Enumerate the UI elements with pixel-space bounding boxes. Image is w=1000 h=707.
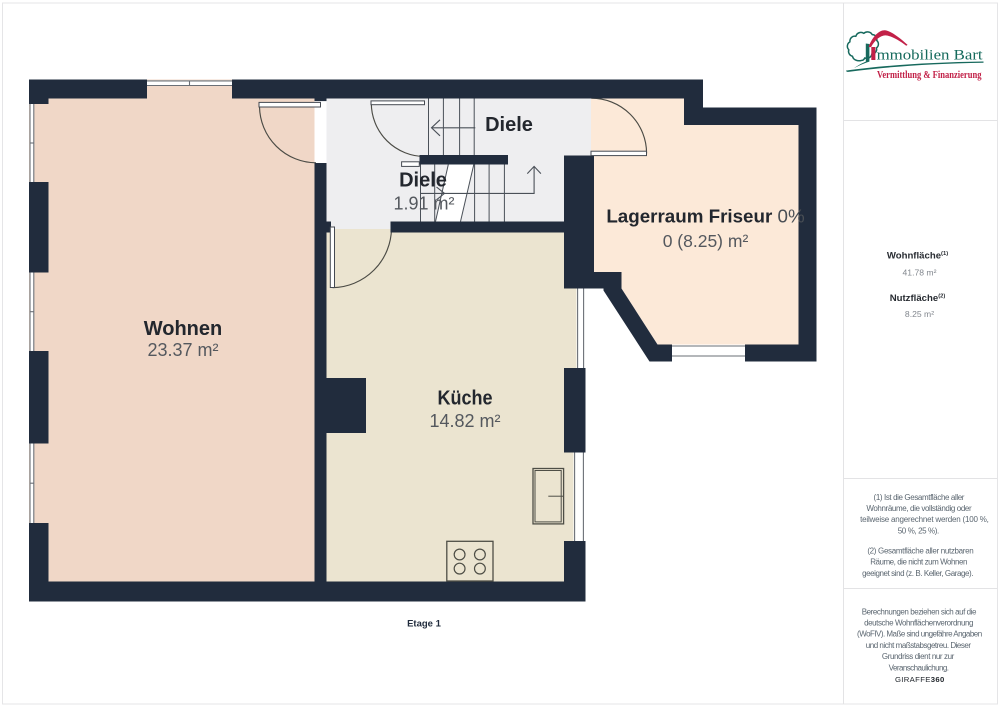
svg-text:(1) Ist die Gesamtfläche aller: (1) Ist die Gesamtfläche aller [874, 493, 965, 502]
svg-text:(2) Gesamtfläche aller nutzbar: (2) Gesamtfläche aller nutzbaren [867, 546, 973, 555]
svg-text:Veranschaulichung.: Veranschaulichung. [889, 663, 949, 672]
svg-text:50 %, 25 %).: 50 %, 25 %). [898, 526, 940, 535]
svg-text:mmobilien Bart: mmobilien Bart [877, 47, 983, 63]
svg-text:Diele: Diele [399, 170, 447, 192]
svg-text:Wohnen: Wohnen [144, 318, 223, 340]
svg-text:41.78 m²: 41.78 m² [903, 268, 937, 278]
svg-text:Berechnungen beziehen sich auf: Berechnungen beziehen sich auf die [862, 607, 977, 616]
svg-text:deutsche Wohnflächenverordnung: deutsche Wohnflächenverordnung [864, 619, 973, 628]
svg-text:14.82 m²: 14.82 m² [429, 411, 500, 431]
svg-text:Wohnräume, die vollständig ode: Wohnräume, die vollständig oder [866, 504, 972, 513]
svg-text:Räume, die nicht zum Wohnen: Räume, die nicht zum Wohnen [870, 558, 967, 567]
svg-text:Nutzfläche(2): Nutzfläche(2) [890, 293, 946, 304]
svg-text:Wohnfläche(1): Wohnfläche(1) [887, 251, 948, 262]
svg-text:0 (8.25) m²: 0 (8.25) m² [663, 231, 749, 251]
svg-text:(WoFIV). Maße sind ungefähre A: (WoFIV). Maße sind ungefähre Angaben [857, 630, 982, 639]
svg-text:Etage 1: Etage 1 [407, 618, 442, 629]
svg-text:teilweise angerechnet werden (: teilweise angerechnet werden (100 %, [860, 515, 989, 524]
svg-text:Lagerraum Friseur 0%: Lagerraum Friseur 0% [606, 206, 805, 227]
svg-text:8.25 m²: 8.25 m² [905, 309, 934, 319]
svg-text:Grundriss dient nur zur: Grundriss dient nur zur [882, 652, 955, 661]
svg-text:Diele: Diele [485, 114, 533, 136]
svg-text:GIRAFFE360: GIRAFFE360 [895, 675, 945, 684]
svg-text:Küche: Küche [438, 388, 493, 410]
svg-text:1.91 m²: 1.91 m² [393, 194, 454, 214]
svg-text:23.37 m²: 23.37 m² [147, 340, 218, 360]
svg-text:Vermittlung & Finanzierung: Vermittlung & Finanzierung [877, 70, 982, 81]
svg-text:und nicht maßstabsgetreu. Dies: und nicht maßstabsgetreu. Dieser [866, 641, 972, 650]
svg-text:geeignet sind (z. B. Keller, G: geeignet sind (z. B. Keller, Garage). [862, 569, 973, 578]
